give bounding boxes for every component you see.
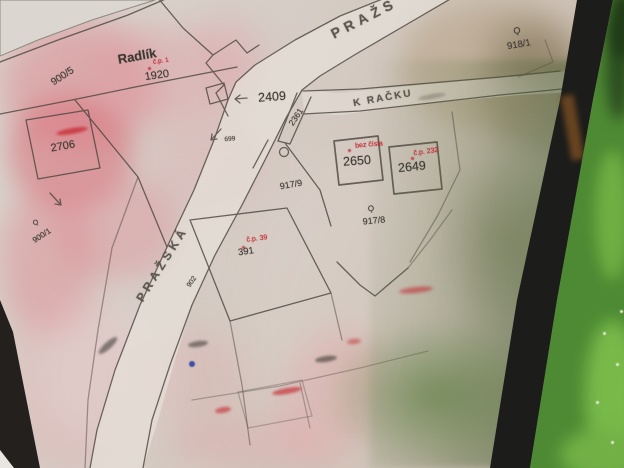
- photo-of-map-board: PRAŽSK RAČKUPRAŽSKÁRadlík1920900/5270690…: [0, 0, 624, 468]
- grass-patch: [585, 320, 624, 468]
- grass-flower: [603, 332, 606, 335]
- grass-patch: [560, 430, 624, 468]
- board-frame-right-edge: [0, 0, 624, 468]
- grass-flower: [596, 401, 599, 404]
- grass-patch-dark: [606, 20, 624, 120]
- grass-flower: [611, 441, 614, 444]
- board-frame-layer: [0, 0, 624, 468]
- grass-flower: [616, 363, 619, 366]
- grass-flower: [620, 310, 623, 313]
- grass-patch: [595, 150, 624, 280]
